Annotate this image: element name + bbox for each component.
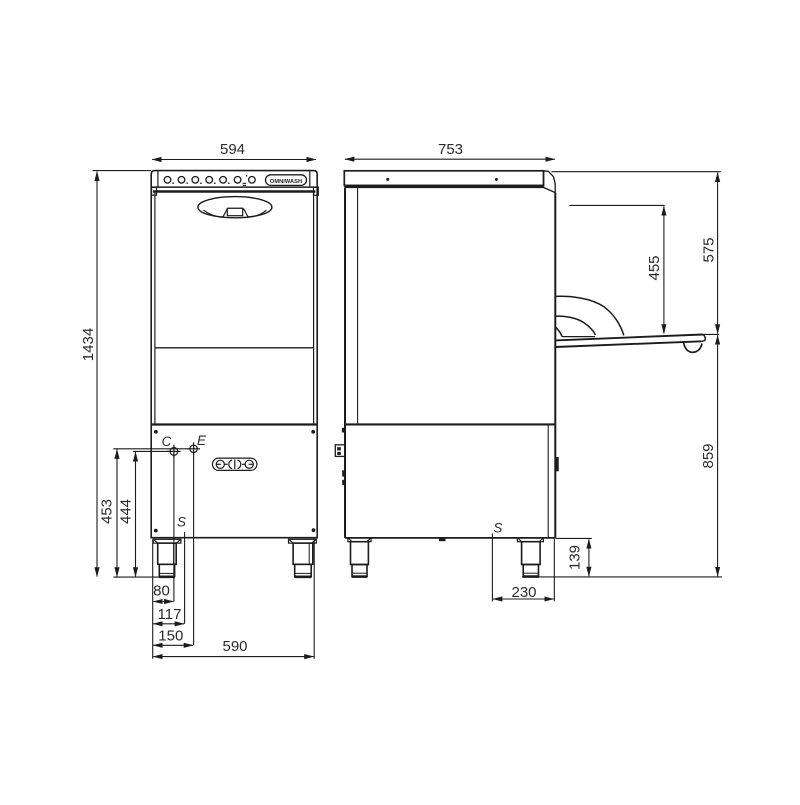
svg-text:E: E [197, 433, 207, 448]
svg-text:117: 117 [158, 606, 182, 623]
svg-text:80: 80 [153, 583, 170, 600]
svg-text:753: 753 [438, 141, 463, 158]
svg-text:575: 575 [701, 237, 718, 262]
svg-text:C: C [162, 434, 172, 449]
svg-text:444: 444 [118, 499, 135, 524]
svg-text:453: 453 [99, 499, 116, 524]
svg-text:139: 139 [567, 545, 584, 570]
svg-text:S: S [177, 515, 186, 530]
svg-text:594: 594 [220, 141, 245, 158]
svg-text:S: S [493, 520, 502, 535]
svg-text:OMNIWASH: OMNIWASH [270, 179, 302, 185]
svg-text:859: 859 [700, 443, 717, 468]
svg-text:1434: 1434 [80, 328, 97, 361]
svg-text:230: 230 [511, 584, 536, 601]
svg-text:590: 590 [222, 638, 247, 655]
svg-text:150: 150 [158, 628, 183, 645]
svg-text:455: 455 [646, 255, 663, 280]
